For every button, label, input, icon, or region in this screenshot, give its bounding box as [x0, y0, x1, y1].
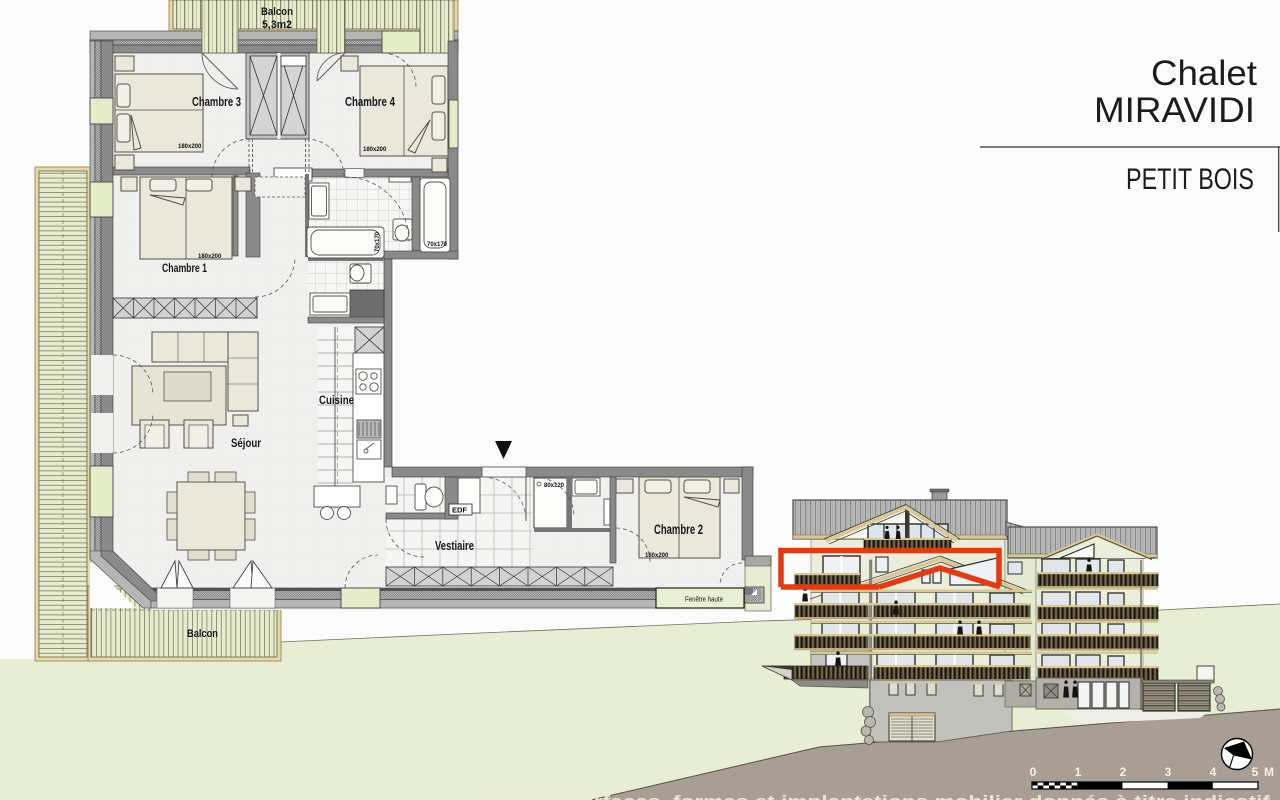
svg-text:180x200: 180x200 — [178, 144, 202, 150]
svg-text:0: 0 — [1030, 765, 1037, 779]
svg-text:5: 5 — [1252, 765, 1259, 779]
svg-text:70x170: 70x170 — [427, 242, 448, 248]
svg-text:Fenêtre haute: Fenêtre haute — [685, 595, 723, 604]
svg-text:2: 2 — [1120, 765, 1127, 779]
svg-text:Chalet: Chalet — [1151, 54, 1257, 93]
svg-text:PETIT BOIS: PETIT BOIS — [1126, 163, 1254, 196]
svg-text:Vestiaire: Vestiaire — [435, 539, 474, 553]
svg-text:Séjour: Séjour — [231, 436, 261, 450]
svg-text:5,3m2: 5,3m2 — [262, 19, 292, 31]
svg-text:180x200: 180x200 — [645, 553, 669, 559]
svg-text:EDF: EDF — [452, 506, 467, 515]
svg-text:Cotes, surfaces, formes et imp: Cotes, surfaces, formes et implantations… — [492, 792, 1270, 800]
svg-text:3: 3 — [1165, 765, 1172, 779]
svg-text:Chambre 3: Chambre 3 — [192, 94, 241, 109]
svg-text:Balcon: Balcon — [261, 6, 293, 18]
svg-text:MIRAVIDI: MIRAVIDI — [1094, 91, 1255, 130]
svg-text:M: M — [1264, 765, 1274, 779]
svg-text:4: 4 — [1210, 765, 1217, 779]
svg-text:80x120: 80x120 — [544, 483, 565, 489]
svg-text:1: 1 — [1075, 765, 1082, 779]
svg-text:70x170: 70x170 — [375, 231, 381, 252]
svg-text:Cuisine: Cuisine — [319, 393, 354, 407]
svg-text:180x200: 180x200 — [198, 254, 222, 260]
svg-text:180x200: 180x200 — [363, 147, 387, 153]
svg-text:Balcon: Balcon — [187, 628, 218, 640]
svg-text:Chambre 4: Chambre 4 — [345, 94, 396, 109]
svg-text:Chambre 1: Chambre 1 — [162, 261, 207, 275]
svg-text:Chambre 2: Chambre 2 — [654, 522, 703, 537]
